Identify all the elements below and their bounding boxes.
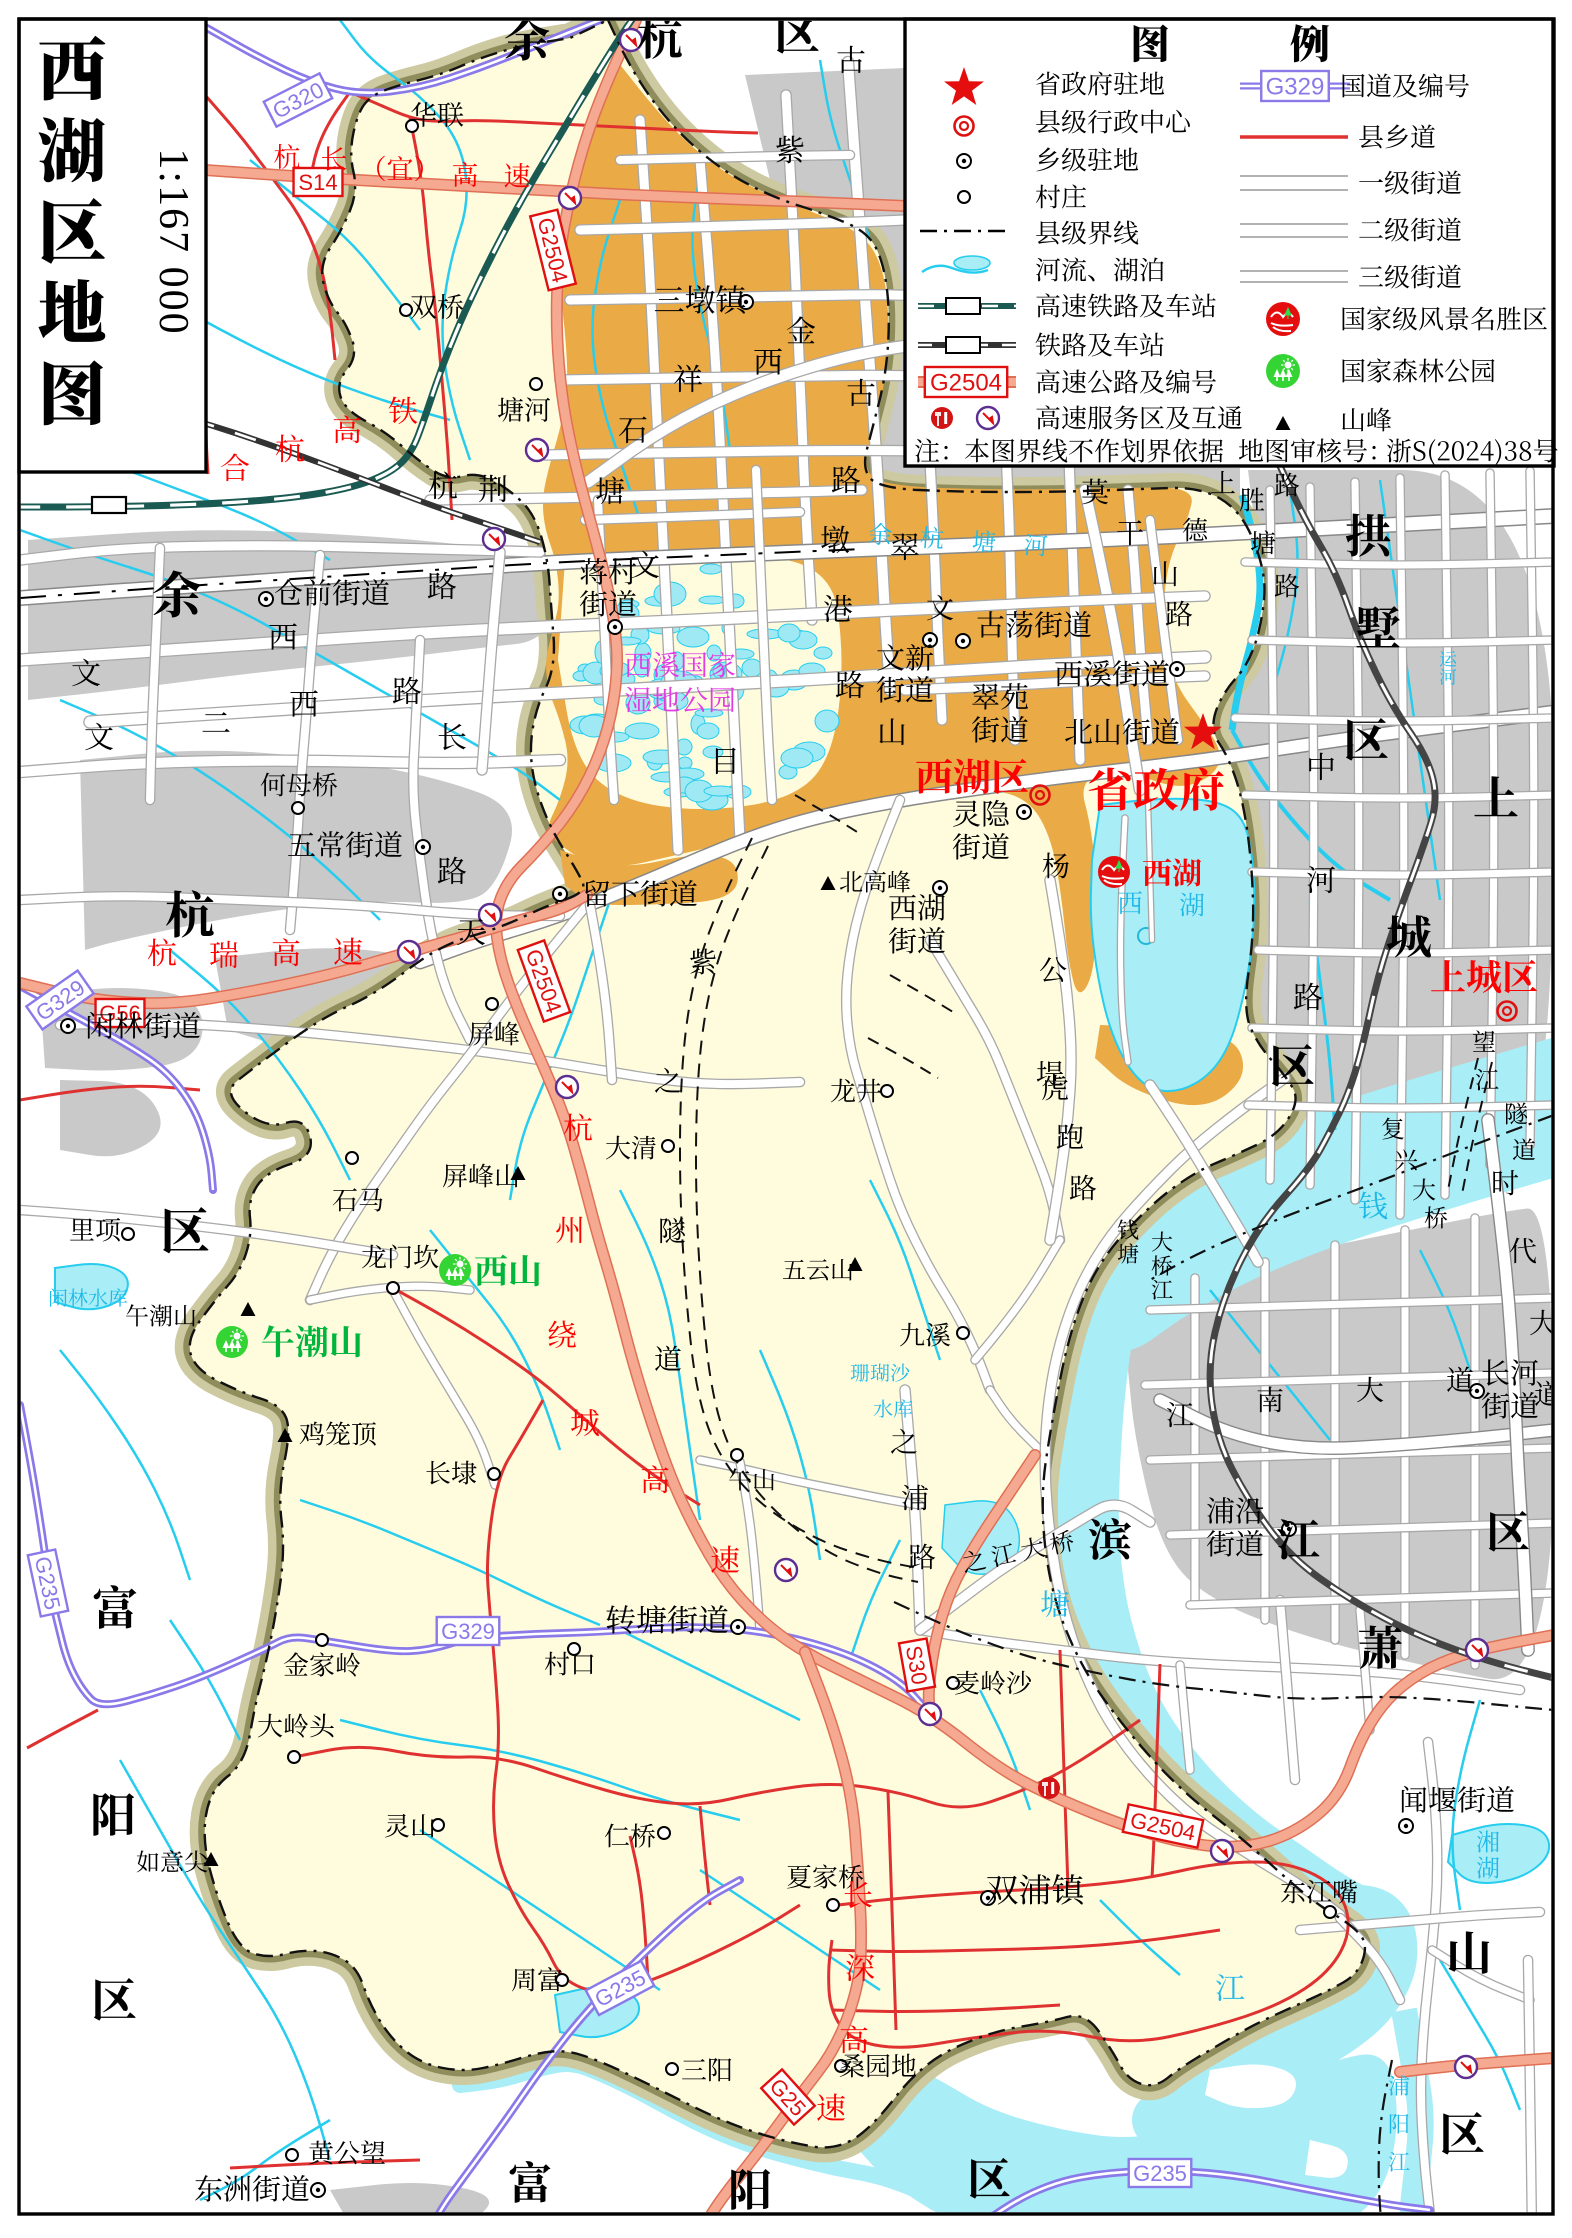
svg-text:G235: G235 [1133, 2161, 1187, 2186]
svg-text:1:167 000: 1:167 000 [150, 148, 196, 335]
svg-text:G2504: G2504 [930, 370, 1002, 397]
svg-text:G329: G329 [1266, 74, 1325, 101]
svg-text:S14: S14 [298, 170, 337, 195]
svg-text:G329: G329 [441, 1619, 495, 1644]
